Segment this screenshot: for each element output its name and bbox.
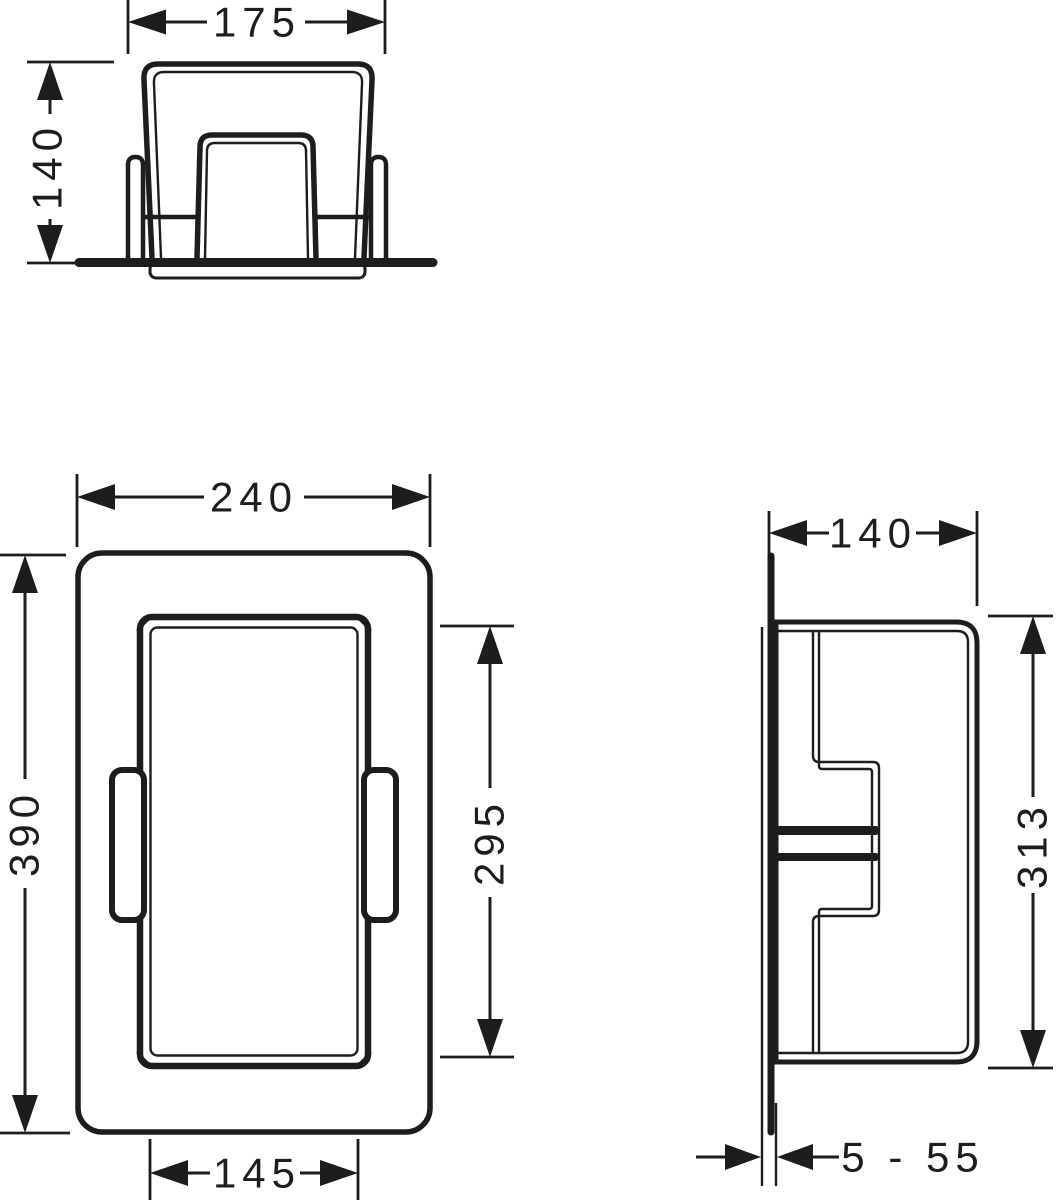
front-view-opening-width-dimension: 145 xyxy=(150,1139,358,1200)
front-view-width-label: 240 xyxy=(210,474,298,521)
front-view-niche-frame xyxy=(140,617,368,1066)
side-view-clip-bar-upper xyxy=(777,826,878,835)
arrowhead-left xyxy=(150,1160,188,1186)
arrowhead-up xyxy=(37,62,63,100)
front-view-clip-tab-right xyxy=(364,770,396,920)
top-view-clip-right xyxy=(371,157,386,262)
front-view-width-dimension: 240 xyxy=(77,474,430,548)
front-view-height-dimension: 390 xyxy=(0,555,70,1133)
arrowhead-down xyxy=(1020,1030,1046,1068)
side-view-clip-bar-lower xyxy=(777,853,878,861)
top-view-depth-dimension: 140 xyxy=(24,62,115,263)
drawing-canvas: 175 140 xyxy=(0,0,1059,1200)
front-view-height-label: 390 xyxy=(1,789,48,877)
front-view-clip-tab-left xyxy=(112,770,144,920)
arrowhead-right xyxy=(347,10,385,35)
side-view-depth-dimension: 140 xyxy=(769,510,977,607)
top-view-inner-sleeve xyxy=(197,135,316,258)
arrowhead-left-pointing xyxy=(777,1144,813,1170)
arrowhead-left xyxy=(77,484,115,510)
arrowhead-down xyxy=(12,1095,38,1133)
arrowhead-right-pointing xyxy=(725,1144,761,1170)
side-view-height-label: 313 xyxy=(1009,801,1056,889)
side-view-tile-range-label: 5 - 55 xyxy=(841,1134,984,1181)
top-view-width-dimension: 175 xyxy=(128,0,385,54)
top-view-depth-label: 140 xyxy=(24,122,71,210)
arrowhead-up xyxy=(1020,616,1046,654)
top-view-body xyxy=(79,64,433,278)
side-view-body xyxy=(762,556,977,1186)
front-view-body xyxy=(78,553,430,1132)
side-view-housing xyxy=(776,622,977,1062)
side-view: 140 313 5 - 55 xyxy=(696,510,1056,1187)
front-view-opening-width-label: 145 xyxy=(213,1150,301,1197)
arrowhead-left xyxy=(128,10,166,35)
side-view-depth-label: 140 xyxy=(829,510,917,557)
front-view-opening-height-label: 295 xyxy=(466,798,513,886)
technical-drawing: 175 140 xyxy=(0,0,1059,1200)
arrowhead-down xyxy=(37,225,63,263)
arrowhead-down xyxy=(477,1019,503,1057)
top-view-clip-left xyxy=(128,157,143,262)
front-view-opening-height-dimension: 295 xyxy=(440,626,514,1057)
front-view: 240 390 295 xyxy=(0,474,514,1200)
arrowhead-right xyxy=(939,520,977,546)
arrowhead-right xyxy=(392,484,430,510)
side-view-height-dimension: 313 xyxy=(988,616,1056,1068)
arrowhead-right xyxy=(320,1160,358,1186)
arrowhead-left xyxy=(769,520,807,546)
top-view-width-label: 175 xyxy=(213,0,301,46)
arrowhead-up xyxy=(12,555,38,593)
side-view-tile-range-dimension: 5 - 55 xyxy=(696,1103,985,1186)
top-view: 175 140 xyxy=(24,0,434,278)
arrowhead-up xyxy=(477,626,503,664)
